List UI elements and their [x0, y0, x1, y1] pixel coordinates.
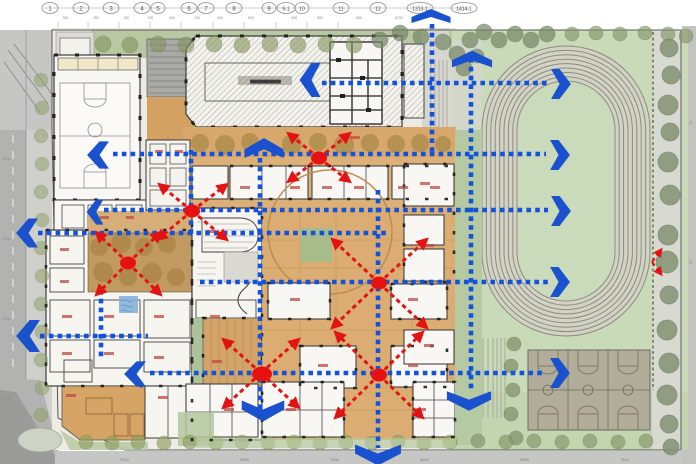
- svg-text:9000: 9000: [520, 457, 530, 462]
- svg-text:75: 75: [688, 120, 693, 125]
- svg-text:8700: 8700: [395, 16, 403, 20]
- svg-text:708: 708: [62, 16, 68, 20]
- svg-text:850: 850: [356, 16, 362, 20]
- svg-text:■■■■■■■■: ■■■■■■■■: [250, 77, 282, 86]
- svg-text:7200: 7200: [2, 316, 12, 321]
- svg-text:12: 12: [375, 7, 381, 13]
- svg-text:400: 400: [169, 16, 175, 20]
- svg-text:7512: 7512: [620, 457, 630, 462]
- svg-text:700: 700: [194, 16, 200, 20]
- svg-text:1414-1: 1414-1: [456, 7, 472, 13]
- svg-text:728: 728: [147, 16, 153, 20]
- svg-text:780: 780: [93, 16, 99, 20]
- svg-text:690: 690: [317, 16, 323, 20]
- svg-text:7500: 7500: [330, 457, 340, 462]
- svg-text:3500: 3500: [2, 156, 12, 161]
- svg-text:3600: 3600: [240, 457, 250, 462]
- svg-text:10: 10: [299, 7, 305, 13]
- svg-text:4200: 4200: [420, 457, 430, 462]
- svg-text:800: 800: [248, 16, 254, 20]
- svg-text:7200: 7200: [2, 236, 12, 241]
- svg-text:7512: 7512: [120, 457, 130, 462]
- svg-text:408: 408: [291, 16, 297, 20]
- svg-text:9-1: 9-1: [282, 7, 289, 13]
- svg-text:75: 75: [688, 260, 693, 265]
- svg-text:3600: 3600: [2, 396, 12, 401]
- svg-text:780: 780: [123, 16, 129, 20]
- svg-text:11: 11: [338, 7, 343, 13]
- svg-text:400: 400: [217, 16, 223, 20]
